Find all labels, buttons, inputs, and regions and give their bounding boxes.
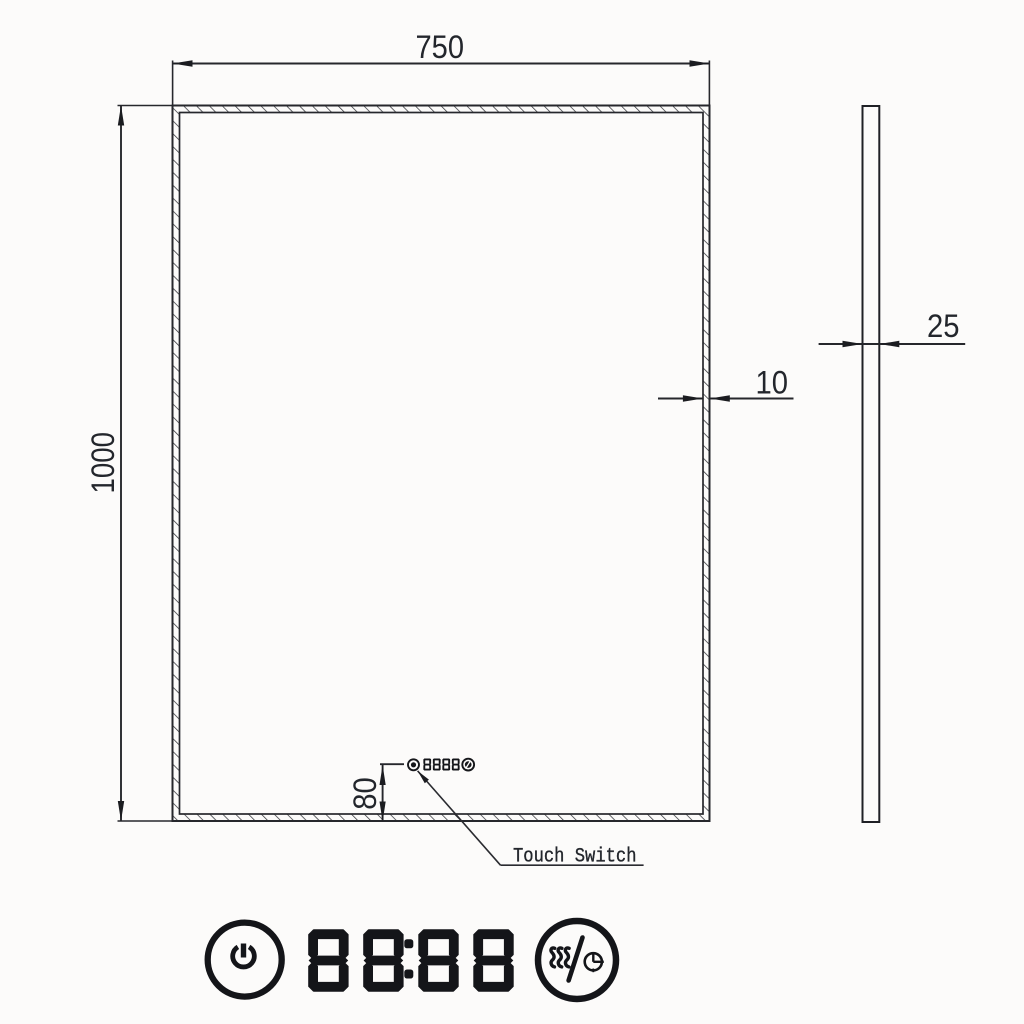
svg-text:10: 10 bbox=[756, 365, 789, 401]
svg-text:750: 750 bbox=[416, 29, 465, 65]
svg-text:80: 80 bbox=[347, 777, 383, 810]
svg-text:25: 25 bbox=[927, 308, 960, 344]
svg-text:Touch Switch: Touch Switch bbox=[513, 846, 637, 869]
svg-text:1000: 1000 bbox=[85, 432, 121, 494]
